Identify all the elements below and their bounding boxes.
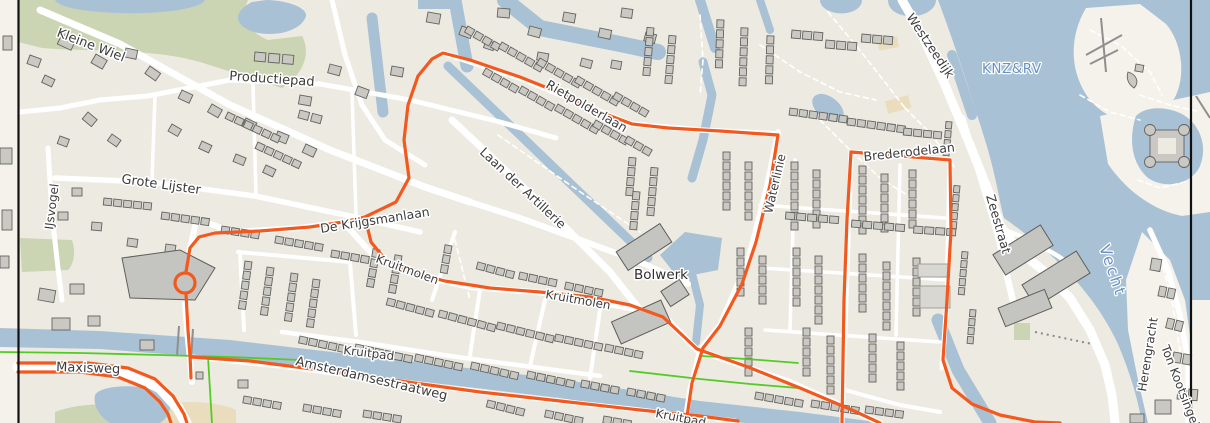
- building: [813, 190, 820, 198]
- building: [406, 303, 416, 312]
- building-row: [390, 66, 403, 77]
- building: [562, 12, 575, 23]
- building: [869, 354, 876, 362]
- building: [548, 278, 557, 287]
- building: [667, 45, 675, 54]
- building: [490, 366, 499, 375]
- building: [839, 115, 848, 123]
- building: [859, 274, 866, 282]
- building-row: [70, 284, 84, 294]
- building: [881, 174, 888, 182]
- building: [72, 188, 82, 196]
- building: [791, 182, 798, 190]
- building: [903, 128, 912, 136]
- building: [554, 412, 563, 421]
- building-row: [1130, 414, 1144, 423]
- building: [897, 372, 904, 380]
- building: [883, 312, 890, 320]
- building: [470, 362, 479, 371]
- building: [883, 292, 890, 300]
- building: [869, 334, 876, 342]
- building: [745, 338, 752, 346]
- building: [945, 121, 952, 128]
- building: [851, 220, 861, 228]
- building: [127, 238, 138, 247]
- building: [793, 258, 800, 266]
- building: [299, 336, 308, 345]
- building: [737, 268, 744, 276]
- building: [959, 278, 966, 285]
- building-row: [883, 262, 890, 330]
- building-row: [1150, 258, 1162, 272]
- building: [476, 262, 486, 271]
- building: [793, 268, 800, 276]
- building: [924, 227, 933, 235]
- building: [913, 278, 920, 286]
- building: [394, 352, 403, 361]
- building: [723, 152, 730, 160]
- building: [238, 301, 246, 310]
- building: [803, 358, 810, 366]
- building: [875, 407, 884, 415]
- building: [58, 212, 68, 220]
- building: [968, 327, 975, 334]
- building: [1130, 414, 1144, 423]
- building: [454, 362, 463, 371]
- building: [584, 340, 593, 349]
- building: [535, 332, 544, 341]
- building: [646, 27, 654, 36]
- building: [268, 53, 280, 63]
- building: [254, 52, 266, 62]
- building: [913, 129, 922, 137]
- building: [648, 197, 656, 206]
- building-row: [759, 256, 766, 304]
- building: [913, 308, 920, 316]
- building: [881, 184, 888, 192]
- building-row: [897, 342, 904, 390]
- building: [1167, 288, 1176, 299]
- building: [881, 194, 888, 202]
- building: [140, 340, 154, 350]
- building: [390, 66, 403, 77]
- building: [308, 338, 317, 347]
- building-row: [0, 148, 12, 164]
- building: [636, 390, 645, 398]
- building: [857, 119, 866, 127]
- building: [716, 50, 723, 58]
- building: [953, 185, 960, 192]
- building: [442, 255, 450, 264]
- building: [434, 358, 443, 367]
- building: [741, 28, 748, 36]
- pond: [418, 0, 454, 9]
- building: [632, 191, 640, 200]
- building: [272, 401, 281, 409]
- building: [444, 360, 453, 369]
- building: [331, 250, 340, 258]
- building: [52, 318, 70, 330]
- building: [262, 297, 270, 306]
- building: [897, 342, 904, 350]
- building: [282, 54, 294, 64]
- building: [877, 122, 886, 130]
- building: [881, 214, 888, 222]
- building: [759, 276, 766, 284]
- building: [827, 376, 834, 384]
- building: [793, 248, 800, 256]
- building: [628, 157, 636, 166]
- building-row: [1155, 400, 1171, 414]
- building: [809, 111, 818, 119]
- building: [759, 296, 766, 304]
- building: [803, 348, 810, 356]
- building: [859, 284, 866, 292]
- building: [515, 407, 524, 416]
- building: [240, 291, 248, 300]
- building: [815, 276, 822, 284]
- building: [909, 200, 916, 208]
- building: [275, 236, 284, 244]
- building: [859, 254, 866, 262]
- building: [360, 255, 369, 263]
- building: [767, 36, 774, 44]
- castle-courtyard: [1158, 138, 1176, 154]
- building: [836, 41, 846, 50]
- building: [536, 373, 545, 382]
- building: [486, 400, 495, 409]
- building: [883, 322, 890, 330]
- building-row: [0, 256, 9, 268]
- building: [883, 302, 890, 310]
- building: [611, 60, 622, 70]
- building: [438, 310, 448, 319]
- building: [614, 346, 623, 355]
- building: [368, 268, 376, 277]
- building: [723, 182, 730, 190]
- building: [373, 412, 382, 420]
- building: [647, 207, 655, 216]
- building: [667, 55, 675, 64]
- building: [313, 406, 322, 414]
- building: [914, 226, 923, 234]
- building: [564, 414, 573, 423]
- building: [605, 344, 614, 353]
- building: [813, 200, 820, 208]
- building: [791, 30, 801, 39]
- building: [496, 402, 505, 411]
- building: [969, 318, 976, 325]
- building: [765, 394, 774, 402]
- building: [745, 328, 752, 336]
- building: [895, 224, 905, 232]
- building: [740, 58, 747, 66]
- building: [262, 399, 271, 407]
- castle-tower: [1179, 157, 1190, 168]
- building: [496, 267, 506, 276]
- building: [859, 186, 866, 194]
- building: [309, 299, 317, 308]
- building: [350, 253, 359, 261]
- building: [668, 35, 676, 44]
- building: [196, 372, 203, 379]
- building-row: [1135, 64, 1144, 72]
- building: [341, 252, 350, 260]
- building: [643, 67, 651, 76]
- building: [519, 272, 528, 281]
- building: [497, 8, 510, 18]
- building: [791, 192, 798, 200]
- building: [909, 180, 916, 188]
- map-viewport[interactable]: Kleine Wiel Productiepad Grote Lijster I…: [0, 0, 1210, 423]
- building: [961, 251, 968, 258]
- building-row: [72, 188, 82, 196]
- building: [794, 399, 803, 407]
- building: [827, 336, 834, 344]
- building: [525, 329, 534, 338]
- building: [945, 130, 952, 137]
- building: [574, 416, 583, 423]
- building: [803, 328, 810, 336]
- building: [873, 222, 883, 230]
- building: [241, 281, 249, 290]
- building: [171, 213, 180, 221]
- building: [161, 212, 170, 220]
- building: [740, 38, 747, 46]
- building: [624, 348, 633, 357]
- building: [308, 309, 316, 318]
- building-row: [621, 8, 633, 18]
- building: [759, 266, 766, 274]
- building: [626, 187, 634, 196]
- building: [813, 32, 823, 41]
- building: [113, 199, 122, 207]
- building: [881, 204, 888, 212]
- building: [238, 380, 248, 388]
- building: [613, 418, 622, 423]
- building: [564, 336, 573, 345]
- building: [594, 342, 603, 351]
- building: [527, 371, 536, 380]
- building: [803, 368, 810, 376]
- building: [294, 239, 303, 247]
- building: [819, 112, 828, 120]
- building: [909, 190, 916, 198]
- building: [895, 410, 904, 418]
- building: [883, 36, 893, 45]
- building-row: [3, 36, 12, 50]
- building: [861, 34, 871, 43]
- park-area: [1014, 323, 1030, 340]
- building: [306, 319, 314, 328]
- building: [506, 405, 515, 414]
- building: [627, 177, 635, 186]
- building: [791, 202, 798, 210]
- building-row: [611, 60, 622, 70]
- building: [799, 109, 808, 117]
- building: [796, 213, 806, 221]
- building: [516, 327, 525, 336]
- building: [859, 166, 866, 174]
- building: [813, 170, 820, 178]
- building: [181, 215, 190, 223]
- building: [600, 384, 609, 392]
- building: [815, 296, 822, 304]
- building: [528, 274, 537, 283]
- building: [716, 30, 723, 38]
- building: [509, 371, 518, 380]
- building: [739, 78, 746, 86]
- building: [960, 269, 967, 276]
- building: [88, 316, 100, 326]
- building: [745, 172, 752, 180]
- building: [298, 95, 311, 106]
- building: [869, 374, 876, 382]
- building-row: [803, 328, 810, 376]
- building: [143, 202, 152, 210]
- building: [952, 203, 959, 210]
- building: [909, 170, 916, 178]
- building: [38, 288, 56, 303]
- building: [506, 324, 515, 333]
- building: [825, 40, 835, 49]
- building: [803, 338, 810, 346]
- building: [865, 406, 874, 414]
- map-canvas[interactable]: Kleine Wiel Productiepad Grote Lijster I…: [0, 0, 1210, 423]
- building: [827, 346, 834, 354]
- building-row: [598, 28, 612, 39]
- building: [859, 206, 866, 214]
- building: [303, 404, 312, 412]
- building: [859, 196, 866, 204]
- building: [745, 348, 752, 356]
- building: [793, 288, 800, 296]
- building: [289, 283, 297, 292]
- building: [958, 287, 965, 294]
- building: [650, 167, 658, 176]
- building: [243, 271, 251, 280]
- building: [367, 278, 375, 287]
- building: [645, 47, 653, 56]
- building: [610, 386, 619, 394]
- building: [644, 57, 652, 66]
- building: [821, 402, 830, 410]
- building: [263, 287, 271, 296]
- building: [923, 130, 932, 138]
- building: [103, 198, 112, 206]
- building: [717, 20, 724, 28]
- building: [424, 356, 433, 365]
- building: [759, 256, 766, 264]
- building: [311, 289, 319, 298]
- building: [444, 245, 452, 254]
- building: [897, 362, 904, 370]
- building: [869, 364, 876, 372]
- building: [243, 396, 252, 404]
- building: [386, 298, 396, 307]
- building: [287, 293, 295, 302]
- building: [802, 31, 812, 40]
- building: [913, 298, 920, 306]
- building: [304, 241, 313, 249]
- building: [123, 200, 132, 208]
- building: [791, 162, 798, 170]
- building: [415, 354, 424, 363]
- street-label-maxisweg: Maxisweg: [56, 360, 121, 377]
- building: [425, 308, 435, 317]
- building: [791, 172, 798, 180]
- building: [500, 369, 509, 378]
- building: [458, 315, 468, 324]
- building: [666, 65, 674, 74]
- building: [645, 37, 653, 46]
- building: [887, 124, 896, 132]
- building: [565, 282, 574, 291]
- building: [961, 260, 968, 267]
- building: [598, 28, 612, 39]
- building: [745, 182, 752, 190]
- building: [737, 248, 744, 256]
- building-row: [127, 238, 138, 247]
- building: [426, 12, 441, 24]
- building: [403, 354, 412, 363]
- building: [538, 276, 547, 285]
- building: [574, 338, 583, 347]
- building-row: [815, 256, 822, 324]
- building: [486, 265, 496, 274]
- building: [396, 301, 406, 310]
- building: [807, 214, 817, 222]
- building: [312, 279, 320, 288]
- building: [191, 216, 200, 224]
- building: [556, 377, 565, 386]
- building: [627, 388, 636, 396]
- building: [815, 286, 822, 294]
- building: [811, 400, 820, 408]
- building: [827, 366, 834, 374]
- building: [649, 177, 657, 186]
- building: [649, 187, 657, 196]
- building: [546, 375, 555, 384]
- building: [953, 194, 960, 201]
- building: [505, 270, 515, 279]
- building: [332, 409, 341, 417]
- building: [545, 410, 554, 419]
- building: [253, 398, 262, 406]
- building: [723, 192, 730, 200]
- building: [581, 380, 590, 388]
- building: [496, 322, 505, 331]
- building: [631, 211, 639, 220]
- building: [656, 394, 665, 402]
- building: [883, 282, 890, 290]
- building: [630, 221, 638, 230]
- building: [739, 68, 746, 76]
- building: [477, 320, 487, 329]
- building: [723, 162, 730, 170]
- building-row: [140, 340, 154, 350]
- building: [646, 392, 655, 400]
- building: [3, 36, 12, 50]
- building: [555, 334, 564, 343]
- building: [883, 262, 890, 270]
- building: [486, 323, 496, 332]
- building: [897, 382, 904, 390]
- building: [631, 201, 639, 210]
- building: [793, 278, 800, 286]
- building: [328, 342, 337, 351]
- building: [1155, 400, 1171, 414]
